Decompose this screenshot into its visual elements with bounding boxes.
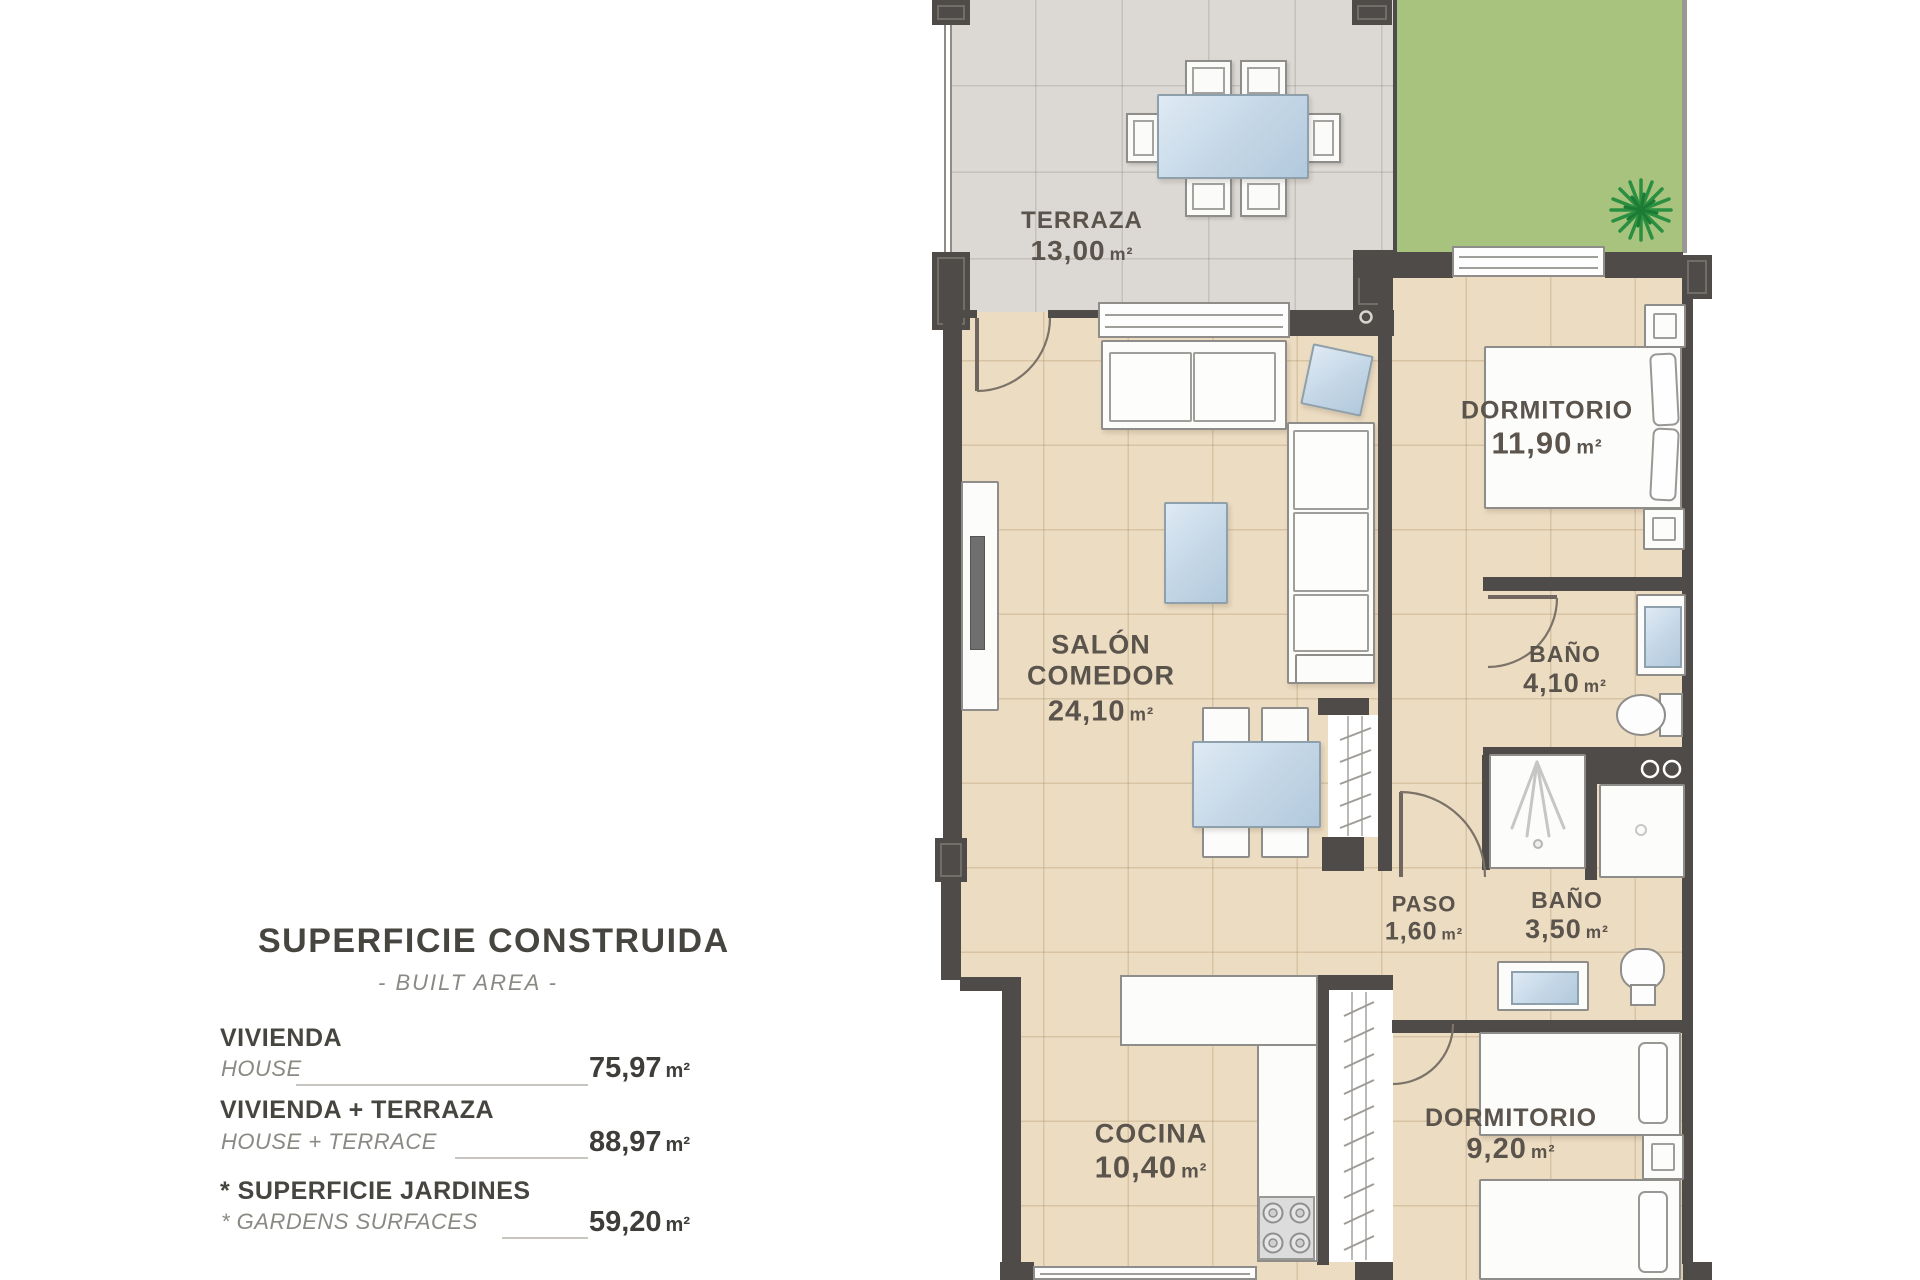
room-label-dormitorio2: DORMITORIO 9,20m²: [1425, 1104, 1597, 1166]
window-rail: [1105, 314, 1283, 316]
terrace-dining-table: [1157, 94, 1309, 179]
room-area: 4,10m²: [1523, 668, 1607, 699]
floorplan-page: TERRAZA 13,00m² SALÓN COMEDOR 24,10m² DO…: [0, 0, 1920, 1280]
legend-unit: m²: [666, 1134, 690, 1156]
wall: [941, 882, 961, 980]
legend-value: 88,97: [589, 1126, 662, 1158]
coffee-table: [1164, 502, 1228, 604]
room-name: PASO: [1385, 892, 1463, 918]
washing-machine: [1599, 784, 1685, 878]
room-area: 10,40m²: [1095, 1150, 1208, 1186]
sofa-cushion: [1193, 352, 1276, 422]
terrace-chair: [1126, 113, 1161, 163]
area-unit: m²: [1129, 704, 1154, 725]
chaise-cushion: [1293, 430, 1369, 510]
sofa-cushion: [1109, 352, 1192, 422]
area-unit: m²: [1584, 676, 1607, 696]
window-rail: [1040, 1273, 1250, 1275]
pillow: [1638, 1042, 1668, 1124]
pillar: [1683, 1262, 1712, 1280]
area-value: 9,20: [1466, 1133, 1526, 1165]
wall-kitchen-west: [1002, 977, 1021, 1280]
area-unit: m²: [1181, 1161, 1207, 1183]
pillow: [1649, 427, 1680, 501]
room-area: 13,00m²: [1021, 235, 1143, 267]
stove: [1258, 1196, 1315, 1260]
room-area: 24,10m²: [1027, 696, 1175, 729]
room-label-paso: PASO 1,60m²: [1385, 892, 1463, 947]
nightstand: [1643, 508, 1685, 550]
room-area: 1,60m²: [1385, 918, 1463, 947]
legend-row-label-es: * SUPERFICIE JARDINES: [220, 1177, 531, 1206]
terrace-chair: [1306, 113, 1341, 163]
room-label-cocina: COCINA 10,40m²: [1095, 1119, 1208, 1186]
window-rail: [1105, 326, 1283, 328]
nightstand: [1644, 304, 1686, 348]
legend-value: 59,20: [589, 1206, 662, 1238]
area-unit: m²: [1586, 922, 1609, 942]
room-area: 3,50m²: [1525, 914, 1609, 945]
room-label-bano1: BAÑO 4,10m²: [1523, 641, 1607, 699]
salon-window: [1098, 302, 1290, 338]
closet-slider-void: [1328, 715, 1378, 837]
wall-garden-south: [1605, 252, 1683, 278]
legend-value: 75,97: [589, 1052, 662, 1084]
shower-tray: [1489, 754, 1586, 869]
closet-cap: [1322, 837, 1364, 871]
pillar: [1000, 1262, 1034, 1280]
legend-row-value: 75,97m²: [550, 1052, 690, 1085]
area-value: 11,90: [1491, 426, 1572, 461]
kitchen-peninsula: [1120, 975, 1318, 1046]
area-value: 24,10: [1048, 696, 1126, 728]
terrace-glass-wall: [944, 25, 952, 252]
terrace-chair: [1185, 176, 1232, 217]
room-label-dormitorio1: DORMITORIO 11,90m²: [1461, 397, 1633, 462]
terrace-chair: [1240, 176, 1287, 217]
legend-row-label-en: * GARDENS SURFACES: [221, 1209, 478, 1235]
ottoman: [1295, 654, 1375, 684]
room-area: 11,90m²: [1461, 426, 1633, 462]
room-label-salon: SALÓN COMEDOR 24,10m²: [1027, 630, 1175, 729]
garden-fence: [1682, 0, 1687, 253]
garden-floor: [1397, 0, 1682, 253]
dining-table: [1192, 741, 1321, 828]
room-name: SALÓN: [1027, 630, 1175, 661]
wall-terrace-garden: [1393, 0, 1397, 253]
area-value: 3,50: [1525, 914, 1582, 944]
room-name: BAÑO: [1523, 641, 1607, 668]
wall-dorm1-bath: [1483, 577, 1685, 591]
pillar: [1682, 255, 1712, 299]
legend-row-value: 88,97m²: [550, 1126, 690, 1159]
legend-title: SUPERFICIE CONSTRUIDA: [258, 922, 730, 961]
pillar: [935, 838, 967, 882]
wall: [1048, 310, 1100, 318]
legend-subtitle: - BUILT AREA -: [378, 970, 558, 996]
closet-cap: [1318, 698, 1369, 715]
room-name: DORMITORIO: [1461, 397, 1633, 426]
area-unit: m²: [1442, 927, 1464, 944]
legend-row-label-es: VIVIENDA: [220, 1024, 342, 1053]
kitchen-window: [1033, 1266, 1257, 1280]
room-name: DORMITORIO: [1425, 1104, 1597, 1133]
area-value: 13,00: [1031, 235, 1106, 266]
tv-screen: [970, 536, 985, 650]
area-value: 1,60: [1385, 918, 1438, 946]
pillow: [1638, 1191, 1668, 1273]
side-table: [1300, 343, 1374, 417]
chaise-cushion: [1293, 512, 1369, 592]
corridor-slider-void: [1329, 990, 1393, 1262]
wall-salon-west: [943, 318, 962, 838]
area-unit: m²: [1110, 244, 1134, 264]
legend-row-label-en: HOUSE + TERRACE: [221, 1129, 437, 1155]
legend-row-label-en: HOUSE: [221, 1056, 302, 1082]
window-rail: [1459, 256, 1598, 258]
room-area: 9,20m²: [1425, 1133, 1597, 1166]
area-unit: m²: [1576, 437, 1602, 459]
nightstand: [1642, 1134, 1684, 1180]
outside-area: [958, 990, 1004, 1280]
window-rail: [1459, 267, 1598, 269]
wall-salon-dorm1: [1378, 277, 1392, 871]
pillar: [1352, 0, 1392, 25]
chaise-cushion: [1293, 594, 1369, 652]
room-label-bano2: BAÑO 3,50m²: [1525, 887, 1609, 945]
pillar: [932, 0, 970, 25]
room-label-terraza: TERRAZA 13,00m²: [1021, 207, 1143, 267]
area-value: 4,10: [1523, 668, 1580, 698]
legend-row-value: 59,20m²: [550, 1206, 690, 1239]
area-unit: m²: [1531, 1141, 1556, 1162]
sink-basin: [1644, 606, 1682, 668]
legend-row-line: [296, 1084, 588, 1086]
legend-row-label-es: VIVIENDA + TERRAZA: [220, 1096, 494, 1125]
pillar: [1355, 1262, 1393, 1280]
sink-basin: [1511, 971, 1579, 1005]
laundry-counter: [1597, 754, 1685, 784]
wall-shower-laundry: [1585, 747, 1597, 880]
legend-unit: m²: [666, 1214, 690, 1236]
room-name: BAÑO: [1525, 887, 1609, 914]
room-name: COCINA: [1095, 1119, 1208, 1150]
legend-unit: m²: [666, 1060, 690, 1082]
area-value: 10,40: [1095, 1150, 1178, 1185]
wall-garden-south: [1353, 252, 1453, 278]
wall: [950, 310, 977, 318]
pillow: [1649, 352, 1680, 426]
garden-window: [1452, 246, 1605, 277]
room-name: COMEDOR: [1027, 661, 1175, 692]
room-name: TERRAZA: [1021, 207, 1143, 235]
wall-kitchen-east: [1317, 975, 1329, 1265]
